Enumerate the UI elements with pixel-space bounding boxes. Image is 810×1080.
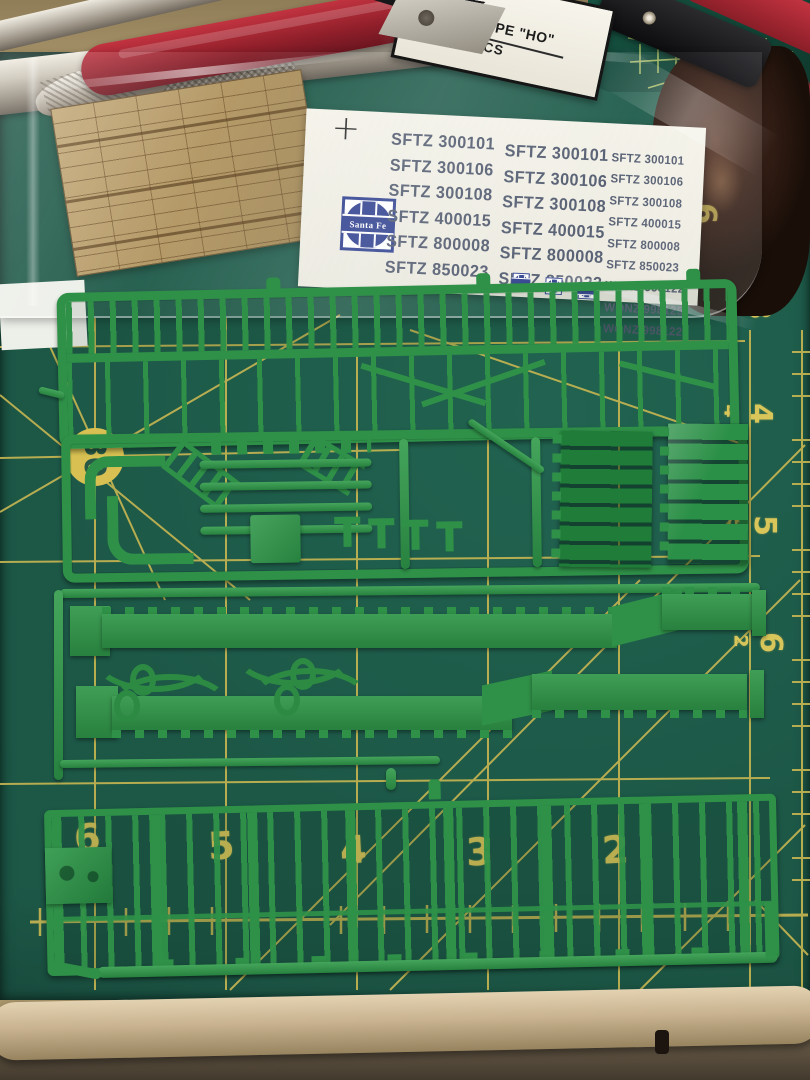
sill-end-cap <box>750 670 764 718</box>
plank-stack-part <box>668 424 748 564</box>
sprue-gate-nub <box>476 273 490 285</box>
right-scale-outer-2: 4 <box>743 403 778 424</box>
door-hole <box>59 866 74 881</box>
bag-highlight-patch <box>601 46 780 176</box>
brake-box-part <box>250 514 301 563</box>
stirrup-part <box>402 520 428 550</box>
dark-notch <box>655 1030 669 1054</box>
sprue-gate-nub <box>686 269 700 281</box>
stirrup-part <box>368 518 394 548</box>
bag-highlight-streak <box>21 50 370 95</box>
sprue-slatted-deck <box>34 784 782 1005</box>
sill-beam <box>532 674 747 710</box>
stirrup-stem <box>343 517 351 547</box>
sprue-stub-top <box>428 779 440 799</box>
door-hole <box>87 871 98 882</box>
plank-stack-part <box>559 431 653 568</box>
bag-seam-highlight <box>26 58 40 306</box>
blade-hole <box>417 9 436 28</box>
pipe-elbow-part <box>107 495 194 565</box>
stirrup-stem <box>411 520 419 550</box>
stirrup-stem <box>377 518 385 548</box>
stack-connector-tabs <box>551 435 562 560</box>
sprue-stub <box>386 768 396 790</box>
stirrup-stem <box>445 521 453 551</box>
runner-hook-right <box>764 902 777 960</box>
runner-rod-left <box>54 590 63 780</box>
truss-rod-arc <box>248 668 372 738</box>
turnbuckle-ring <box>274 684 300 716</box>
runner-bar <box>531 437 542 567</box>
right-scale-outer-3: 5 <box>747 515 782 536</box>
panel-door <box>45 847 112 904</box>
small-clip-parts <box>211 438 371 454</box>
stirrup-part <box>334 517 360 547</box>
panel-mid-rail <box>53 901 771 922</box>
plastic-bag <box>0 52 762 318</box>
sprue-side-frame <box>56 279 739 449</box>
turnbuckle-ring <box>114 690 140 722</box>
sprue-gate-nub <box>266 277 280 289</box>
stack-connector-tabs <box>660 428 669 557</box>
stirrup-part <box>436 521 462 551</box>
runner-rod-bottom <box>60 756 440 768</box>
sprue-car-sills <box>52 578 768 790</box>
sill-end-cap <box>752 590 766 636</box>
sill-beam <box>662 594 758 630</box>
sprue-detail-parts <box>61 425 749 583</box>
tool-rivet <box>641 9 658 26</box>
workbench-photo: 30 6 5 4 3 2 5 3 4 4 5 5 2 6 6 <box>0 0 810 1080</box>
stake-pockets <box>532 710 747 718</box>
